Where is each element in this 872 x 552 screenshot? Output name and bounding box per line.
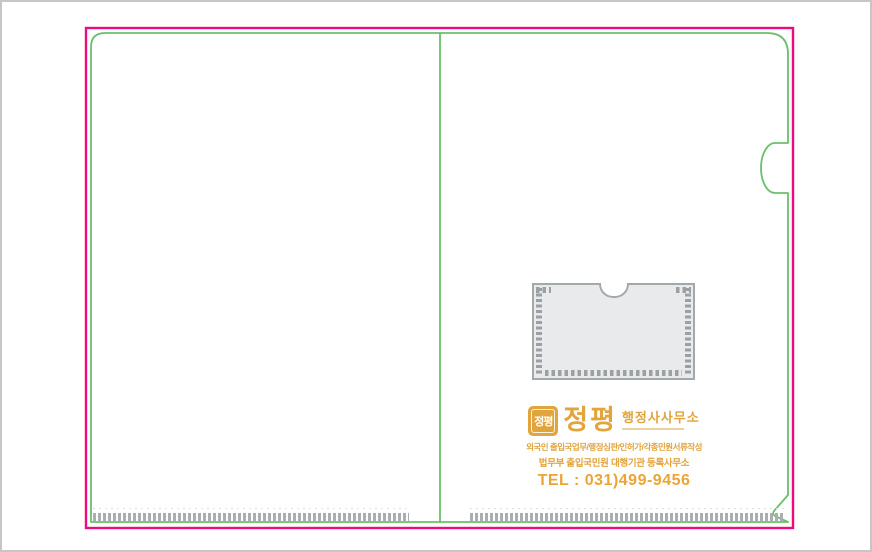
pocket-weld-topright-ticks [676, 287, 691, 293]
logo-suffix: 행정사사무소 [622, 411, 700, 425]
weld-guide-dots-right [470, 508, 785, 509]
logo-row: 정평 정평 행정사사무소 [514, 404, 714, 437]
logo-name: 정평 [563, 407, 617, 434]
bottom-weld-seam-right [470, 513, 785, 521]
logo-seal: 정평 [528, 406, 558, 436]
pocket-weld-right-ticks [685, 288, 691, 375]
die-line-drawing [2, 2, 872, 552]
phone-number: TEL : 031)499-9456 [514, 472, 714, 490]
pocket-weld-bottom-ticks [545, 370, 682, 376]
pocket-thumb-notch [599, 283, 629, 298]
pocket-weld-topleft-ticks [536, 287, 551, 293]
business-card-pocket [532, 283, 695, 380]
logo-seal-text: 정평 [534, 413, 552, 429]
folder-design-proof: 정평 정평 행정사사무소 외국인 출입국업무/행정심판/인허가/각종민원서류작성… [0, 0, 872, 552]
services-line-2: 법무부 출입국민원 대행기관 등록사무소 [514, 455, 714, 469]
logo-suffix-group: 행정사사무소 [622, 411, 700, 430]
pocket-weld-left-ticks [536, 288, 542, 375]
bottom-weld-seam-left [93, 513, 409, 521]
brand-block: 정평 정평 행정사사무소 외국인 출입국업무/행정심판/인허가/각종민원서류작성… [514, 404, 714, 490]
logo-english-caption-line [622, 428, 684, 430]
weld-guide-dots-left [93, 508, 409, 509]
services-line-1: 외국인 출입국업무/행정심판/인허가/각종민원서류작성 [514, 441, 714, 453]
